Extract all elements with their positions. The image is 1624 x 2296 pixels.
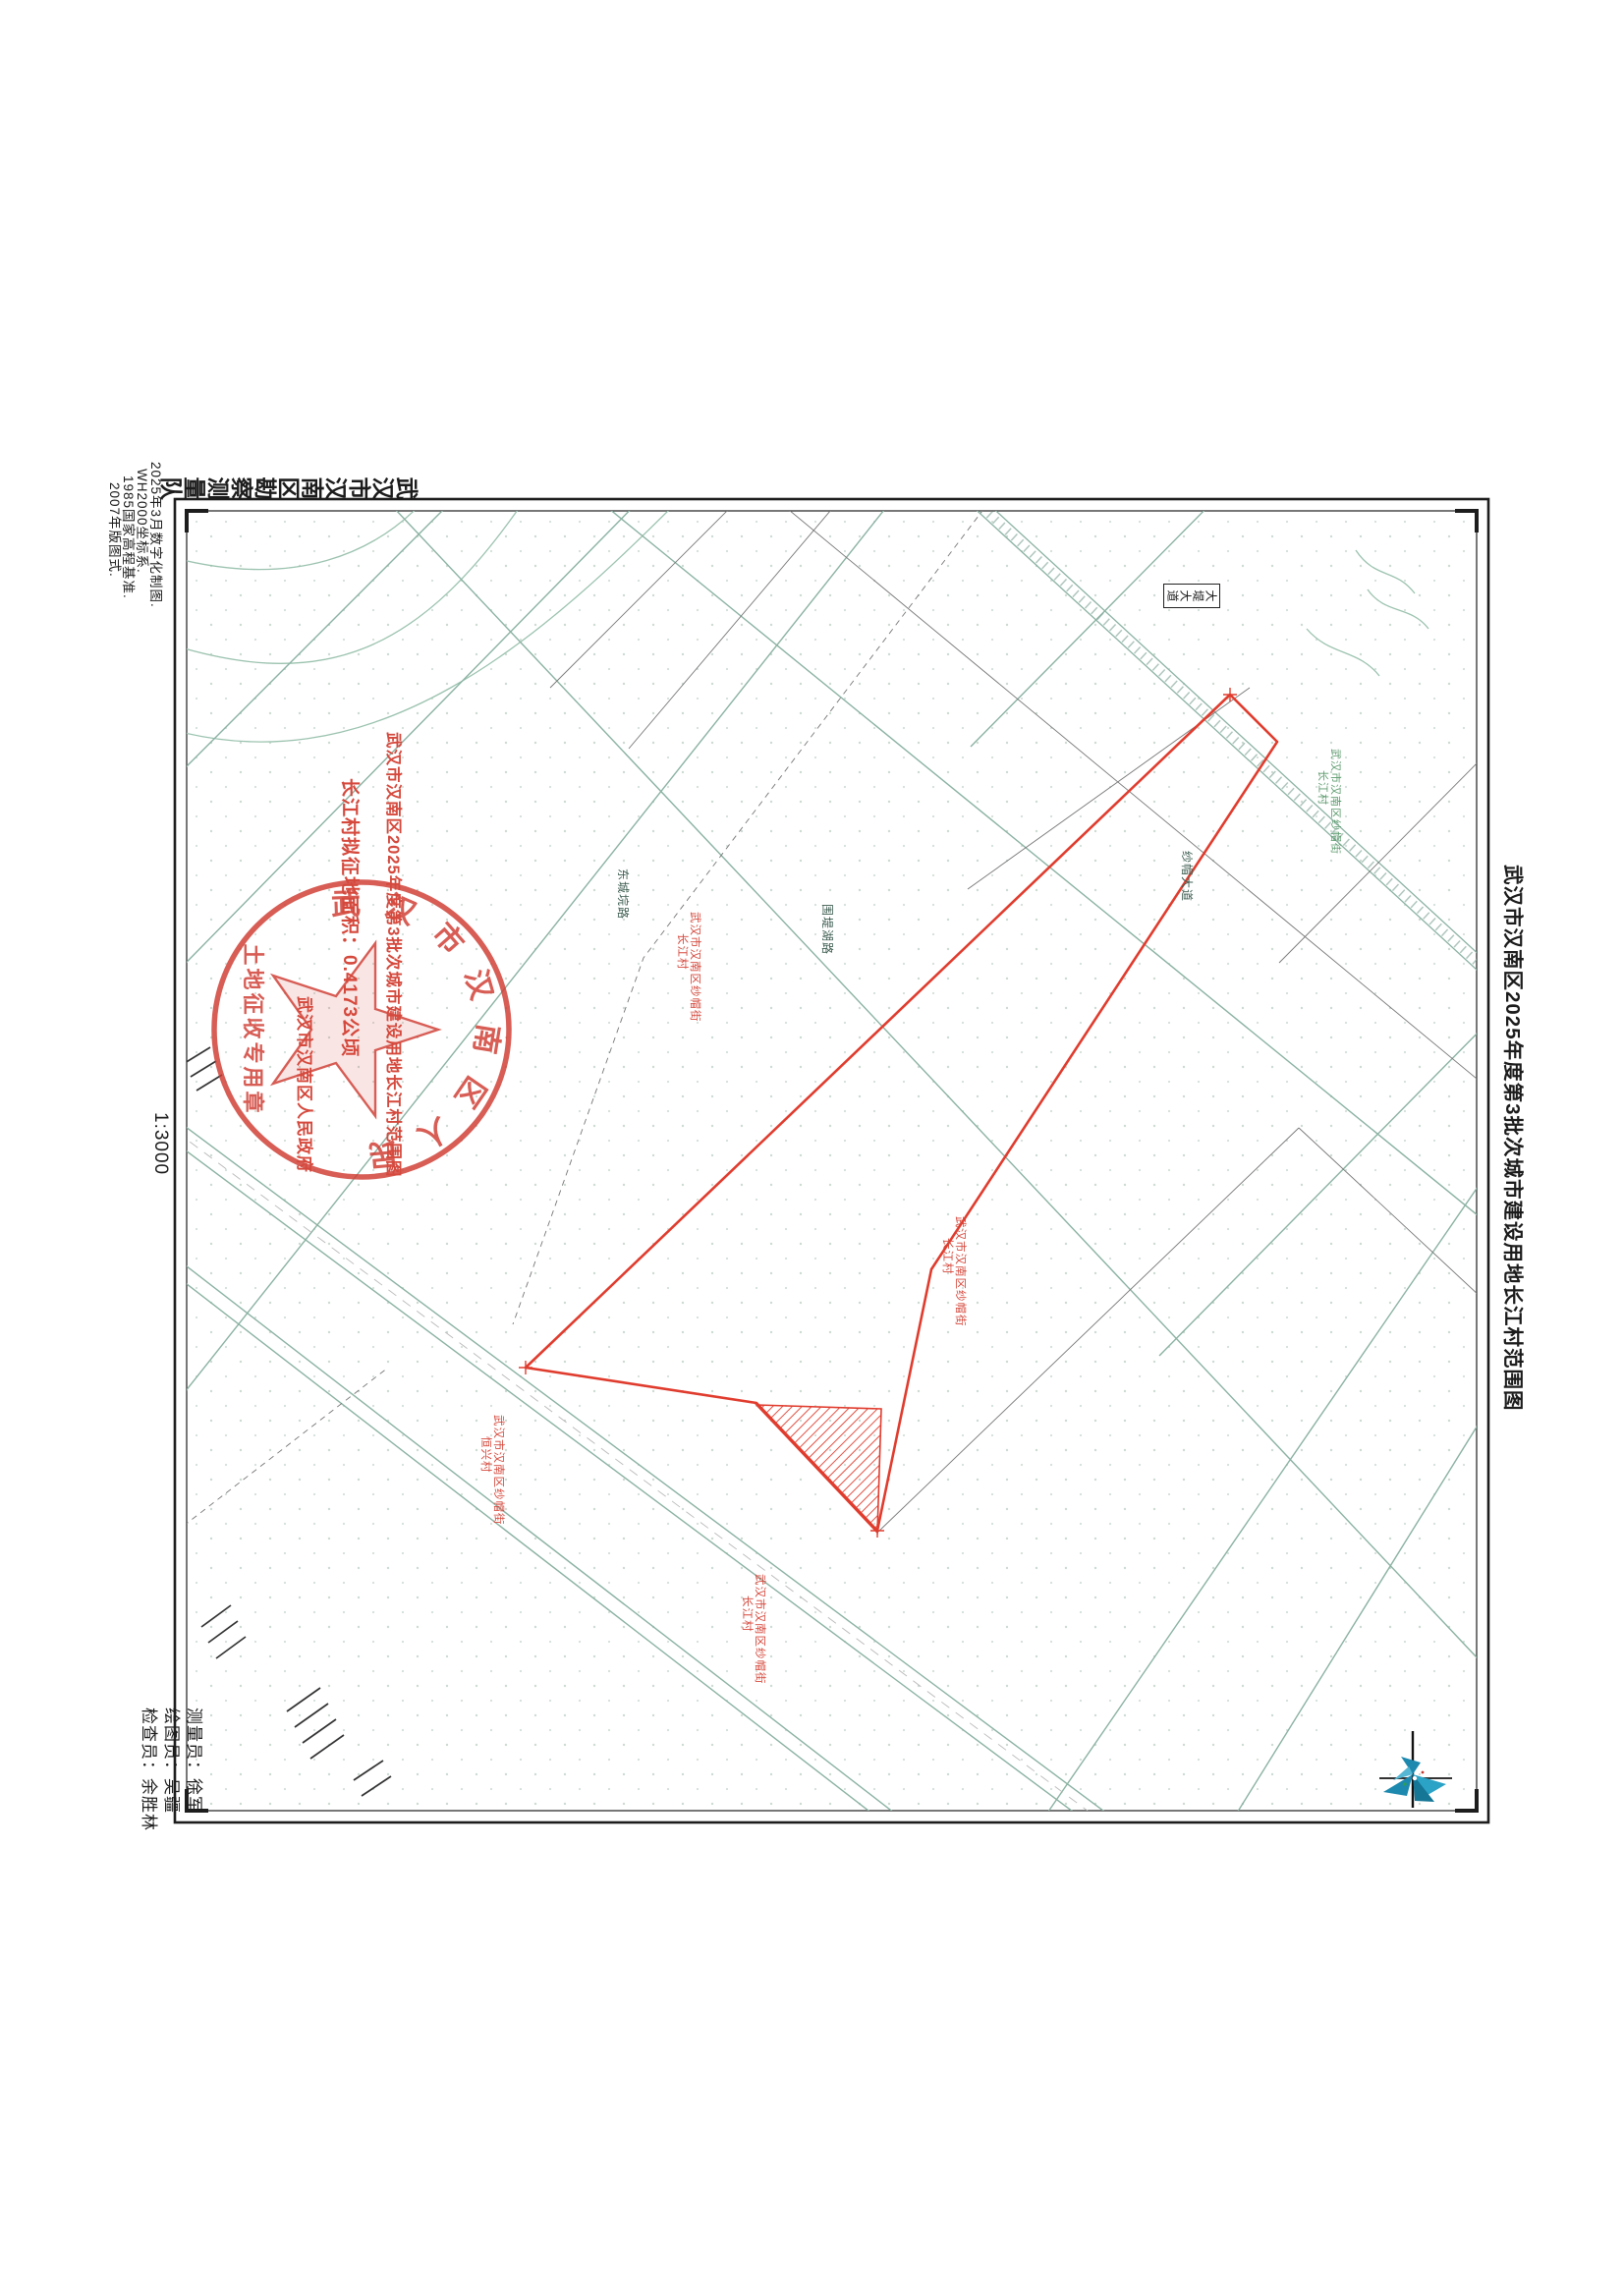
red-annotation-area: 长江村拟征地面积：0.4173公顷 — [338, 778, 364, 1057]
scanned-map-page: 武汉市汉南区人民政府 土地征收专用章 武汉市汉南区勘察测量队 2025年3月数字… — [0, 0, 1624, 2296]
staff-surveyor: 测量员：徐军 — [184, 1708, 208, 1814]
map-scale: 1:3000 — [149, 1112, 171, 1175]
parcel-label-3-line2: 恒兴村 — [478, 1436, 494, 1474]
map-canvas: 武汉市汉南区人民政府 土地征收专用章 — [0, 0, 1624, 2296]
staff-draftsman: 绘图员：吴疆 — [161, 1708, 186, 1814]
road-label-b: 围堤湖路 — [819, 904, 836, 955]
parcel-label-4-line2: 长江村 — [740, 1596, 756, 1633]
road-sign-plate: 大堤大道 — [1163, 584, 1220, 608]
parcel-label-5-line2: 长江村 — [1316, 770, 1331, 806]
road-label-a: 东城垸路 — [615, 868, 632, 920]
stamp-center-text: 土地征收专用章 — [241, 943, 265, 1115]
map-note-4: 2007年版图式. — [106, 482, 126, 578]
red-annotation-title: 武汉市汉南区2025年度第3批次城市建设用地长江村范围图 — [383, 732, 407, 1177]
map-title: 武汉市汉南区2025年度第3批次城市建设用地长江村范围图 — [1500, 865, 1530, 1412]
parcel-label-1-line2: 长江村 — [675, 933, 691, 971]
road-label-c: 纱帽大道 — [1179, 851, 1196, 902]
staff-inspector: 检查员：余胜林 — [139, 1708, 163, 1831]
red-annotation-government: 武汉市汉南区人民政府 — [294, 996, 318, 1173]
parcel-label-2-line2: 长江村 — [940, 1238, 956, 1275]
surveyor-org: 武汉市汉南区勘察测量队 — [159, 470, 419, 503]
